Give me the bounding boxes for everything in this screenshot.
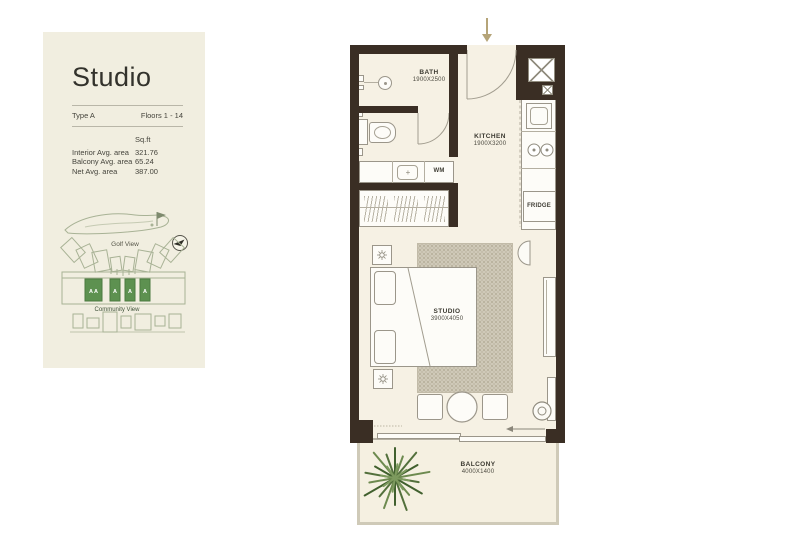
room-name: BALCONY: [461, 461, 496, 468]
area-row-label: Interior Avg. area: [72, 148, 135, 158]
room-dimensions: 3900X4050: [431, 316, 464, 322]
room-label-balcony: BALCONY 4000X1400: [461, 461, 496, 475]
room-label-kitchen: KITCHEN 1900X3200: [474, 133, 507, 147]
room-label-bath: BATH 1900X2500: [413, 69, 446, 83]
room-dimensions: 1900X3200: [474, 141, 507, 147]
table-row: Interior Avg. area 321.76: [72, 148, 183, 158]
nightstand-lamp-icon: [378, 374, 388, 384]
divider: [72, 126, 183, 127]
wall-segment: [449, 45, 458, 157]
fridge-label: FRIDGE: [527, 203, 551, 209]
dining-table: [447, 392, 477, 422]
highlighted-unit-markers: A A A A A: [85, 279, 150, 301]
door-slide-arrow-icon: [506, 426, 545, 432]
golf-course-outline: [65, 214, 168, 234]
community-building-outlines: [70, 312, 185, 332]
north-arrow-compass-icon: [173, 236, 188, 251]
unit-letter: A: [113, 289, 117, 295]
stove-burners: [528, 144, 553, 156]
area-unit-header: Sq.ft: [135, 135, 183, 145]
info-panel: Studio Type A Floors 1 - 14 Sq.ft Interi…: [43, 32, 205, 368]
floor-lamp: [533, 402, 551, 420]
area-row-label: Balcony Avg. area: [72, 157, 135, 167]
service-shaft: [528, 58, 555, 82]
wall-segment: [350, 183, 458, 190]
floors-range-label: Floors 1 - 14: [141, 111, 183, 120]
room-name: STUDIO: [431, 308, 464, 315]
bed-blanket-fold: [408, 268, 430, 366]
unit-letter: A A: [89, 289, 98, 295]
area-table: Sq.ft Interior Avg. area 321.76 Balcony …: [72, 135, 183, 176]
area-row-value: 65.24: [135, 157, 183, 167]
wall-segment: [350, 106, 418, 113]
room-name: KITCHEN: [474, 133, 507, 140]
golf-flag-icon: [151, 212, 167, 227]
golf-view-label: Golf View: [111, 241, 139, 248]
wall-segment: [350, 45, 359, 443]
washing-machine-label: WM: [433, 168, 444, 174]
table-row: Balcony Avg. area 65.24: [72, 157, 183, 167]
area-row-value: 321.76: [135, 148, 183, 158]
room-dimensions: 1900X2500: [413, 77, 446, 83]
area-row-value: 387.00: [135, 167, 183, 177]
unit-type-label: Type A: [72, 111, 95, 120]
site-map: Golf View: [55, 200, 205, 340]
wall-table: [518, 241, 530, 265]
room-label-studio: STUDIO 3900X4050: [431, 308, 464, 322]
wall-segment: [556, 45, 565, 443]
area-row-label: Net Avg. area: [72, 167, 135, 177]
service-shaft: [542, 85, 553, 95]
floorplan-page: Studio Type A Floors 1 - 14 Sq.ft Interi…: [0, 0, 800, 550]
unit-letter: A: [128, 289, 132, 295]
wall-segment: [546, 429, 565, 443]
bath-door-swing: [418, 113, 449, 144]
wall-segment: [449, 190, 458, 227]
plant-icon: [350, 435, 440, 525]
table-row: Net Avg. area 387.00: [72, 167, 183, 177]
room-dimensions: 4000X1400: [461, 469, 496, 475]
entry-arrow-icon: [477, 14, 497, 44]
entry-door-swing: [467, 50, 516, 99]
unit-title: Studio: [72, 62, 183, 93]
nightstand-lamp-icon: [377, 250, 387, 260]
unit-letter: A: [143, 289, 147, 295]
room-name: BATH: [413, 69, 446, 76]
